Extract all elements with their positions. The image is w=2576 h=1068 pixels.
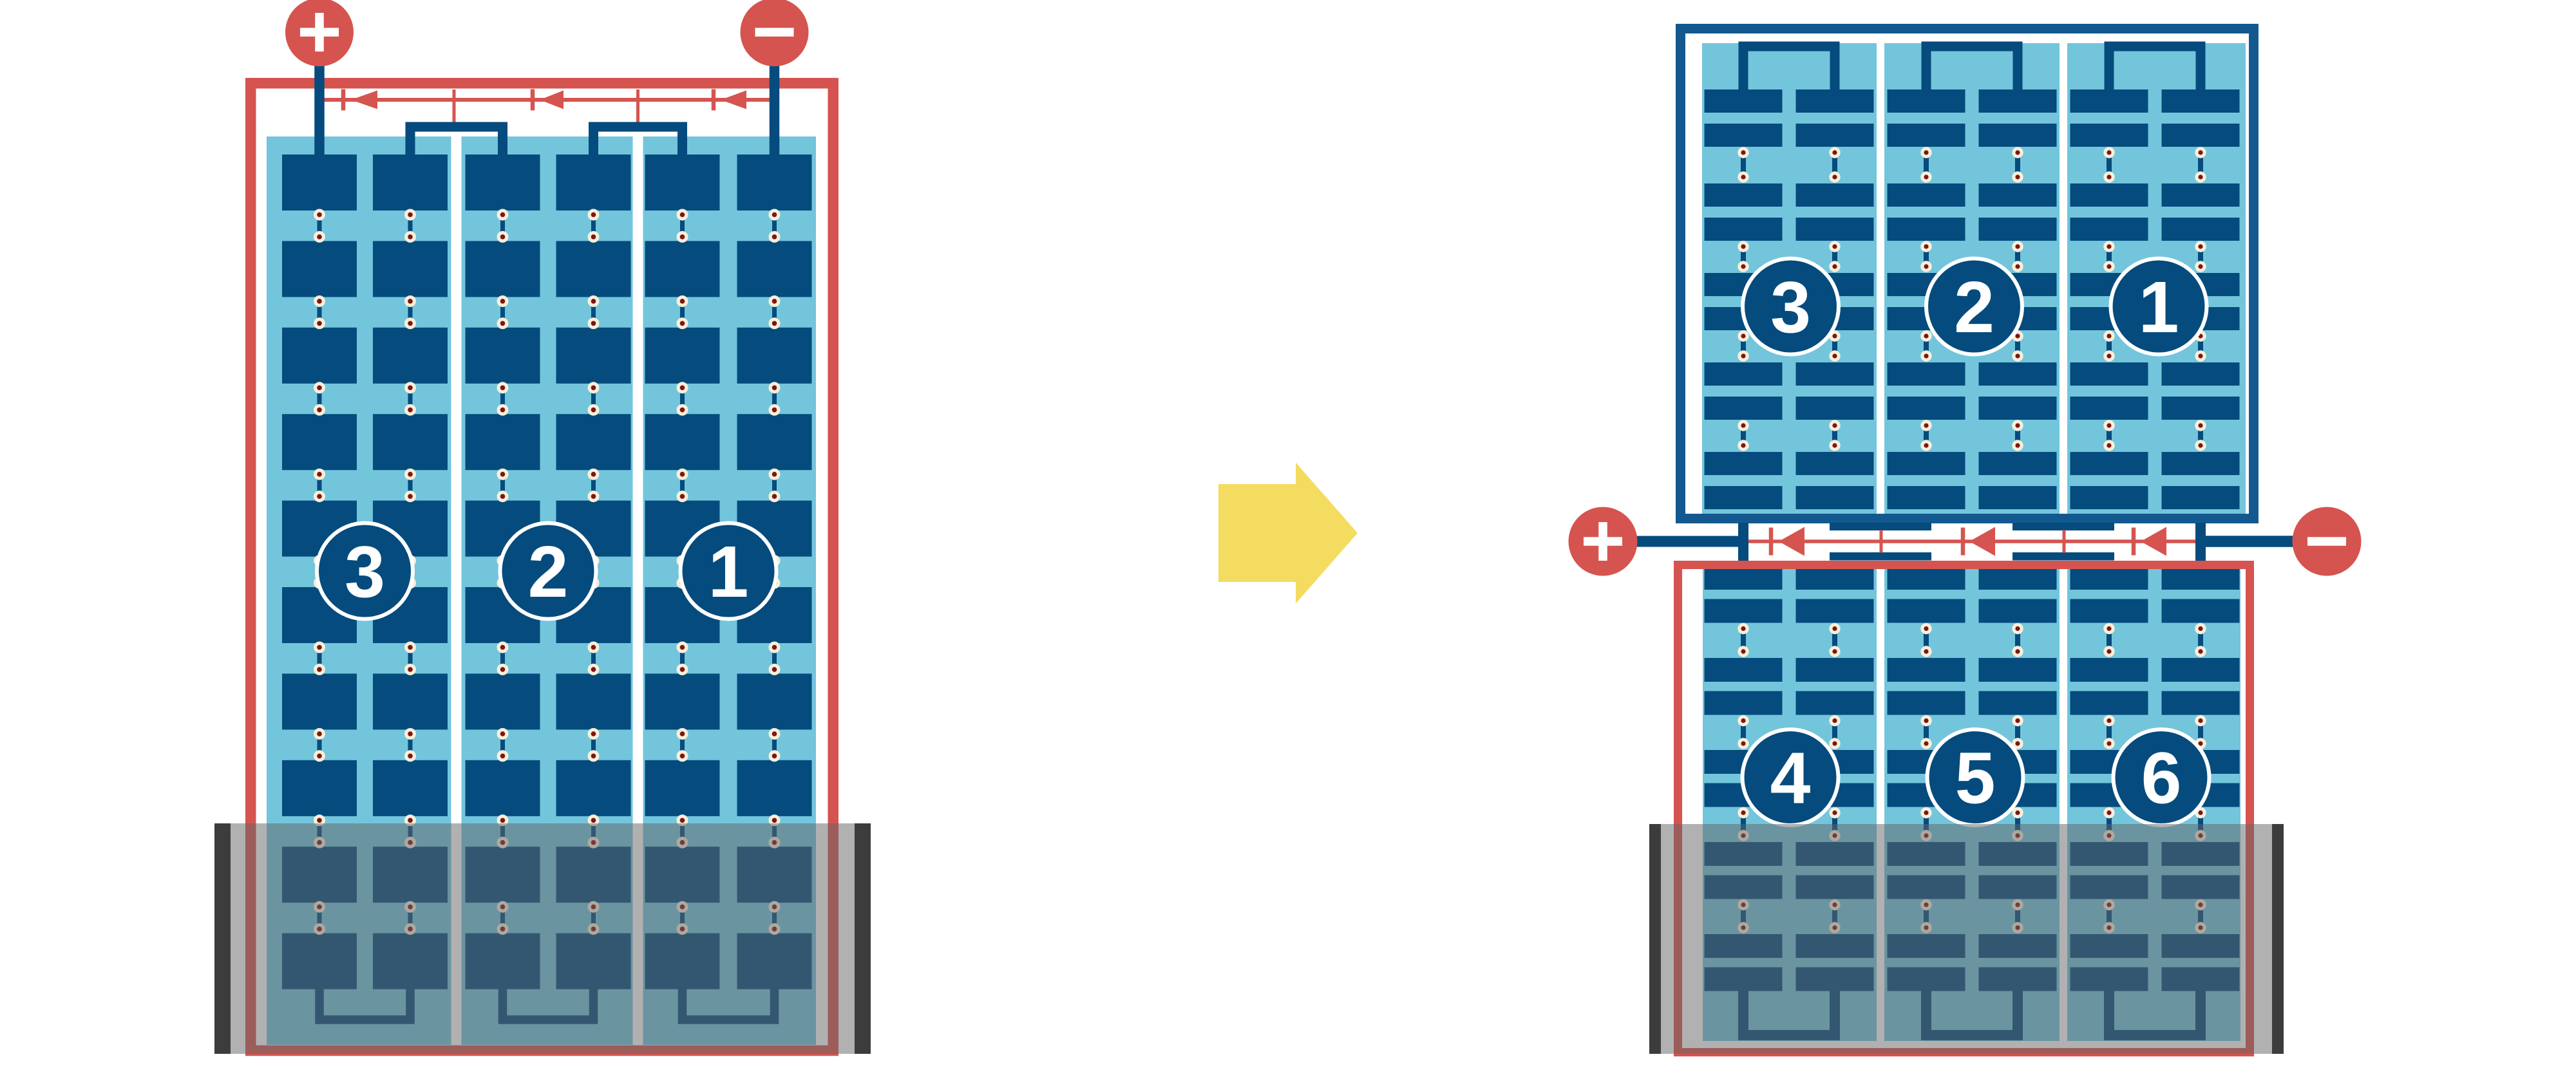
svg-text:4: 4: [1770, 738, 1811, 819]
svg-text:5: 5: [1955, 738, 1996, 819]
svg-text:2: 2: [528, 531, 569, 612]
svg-text:1: 1: [708, 531, 749, 612]
svg-text:2: 2: [1954, 267, 1994, 348]
svg-text:6: 6: [2141, 738, 2182, 819]
svg-text:1: 1: [2139, 267, 2179, 348]
svg-text:3: 3: [345, 531, 385, 612]
svg-text:3: 3: [1770, 267, 1811, 348]
